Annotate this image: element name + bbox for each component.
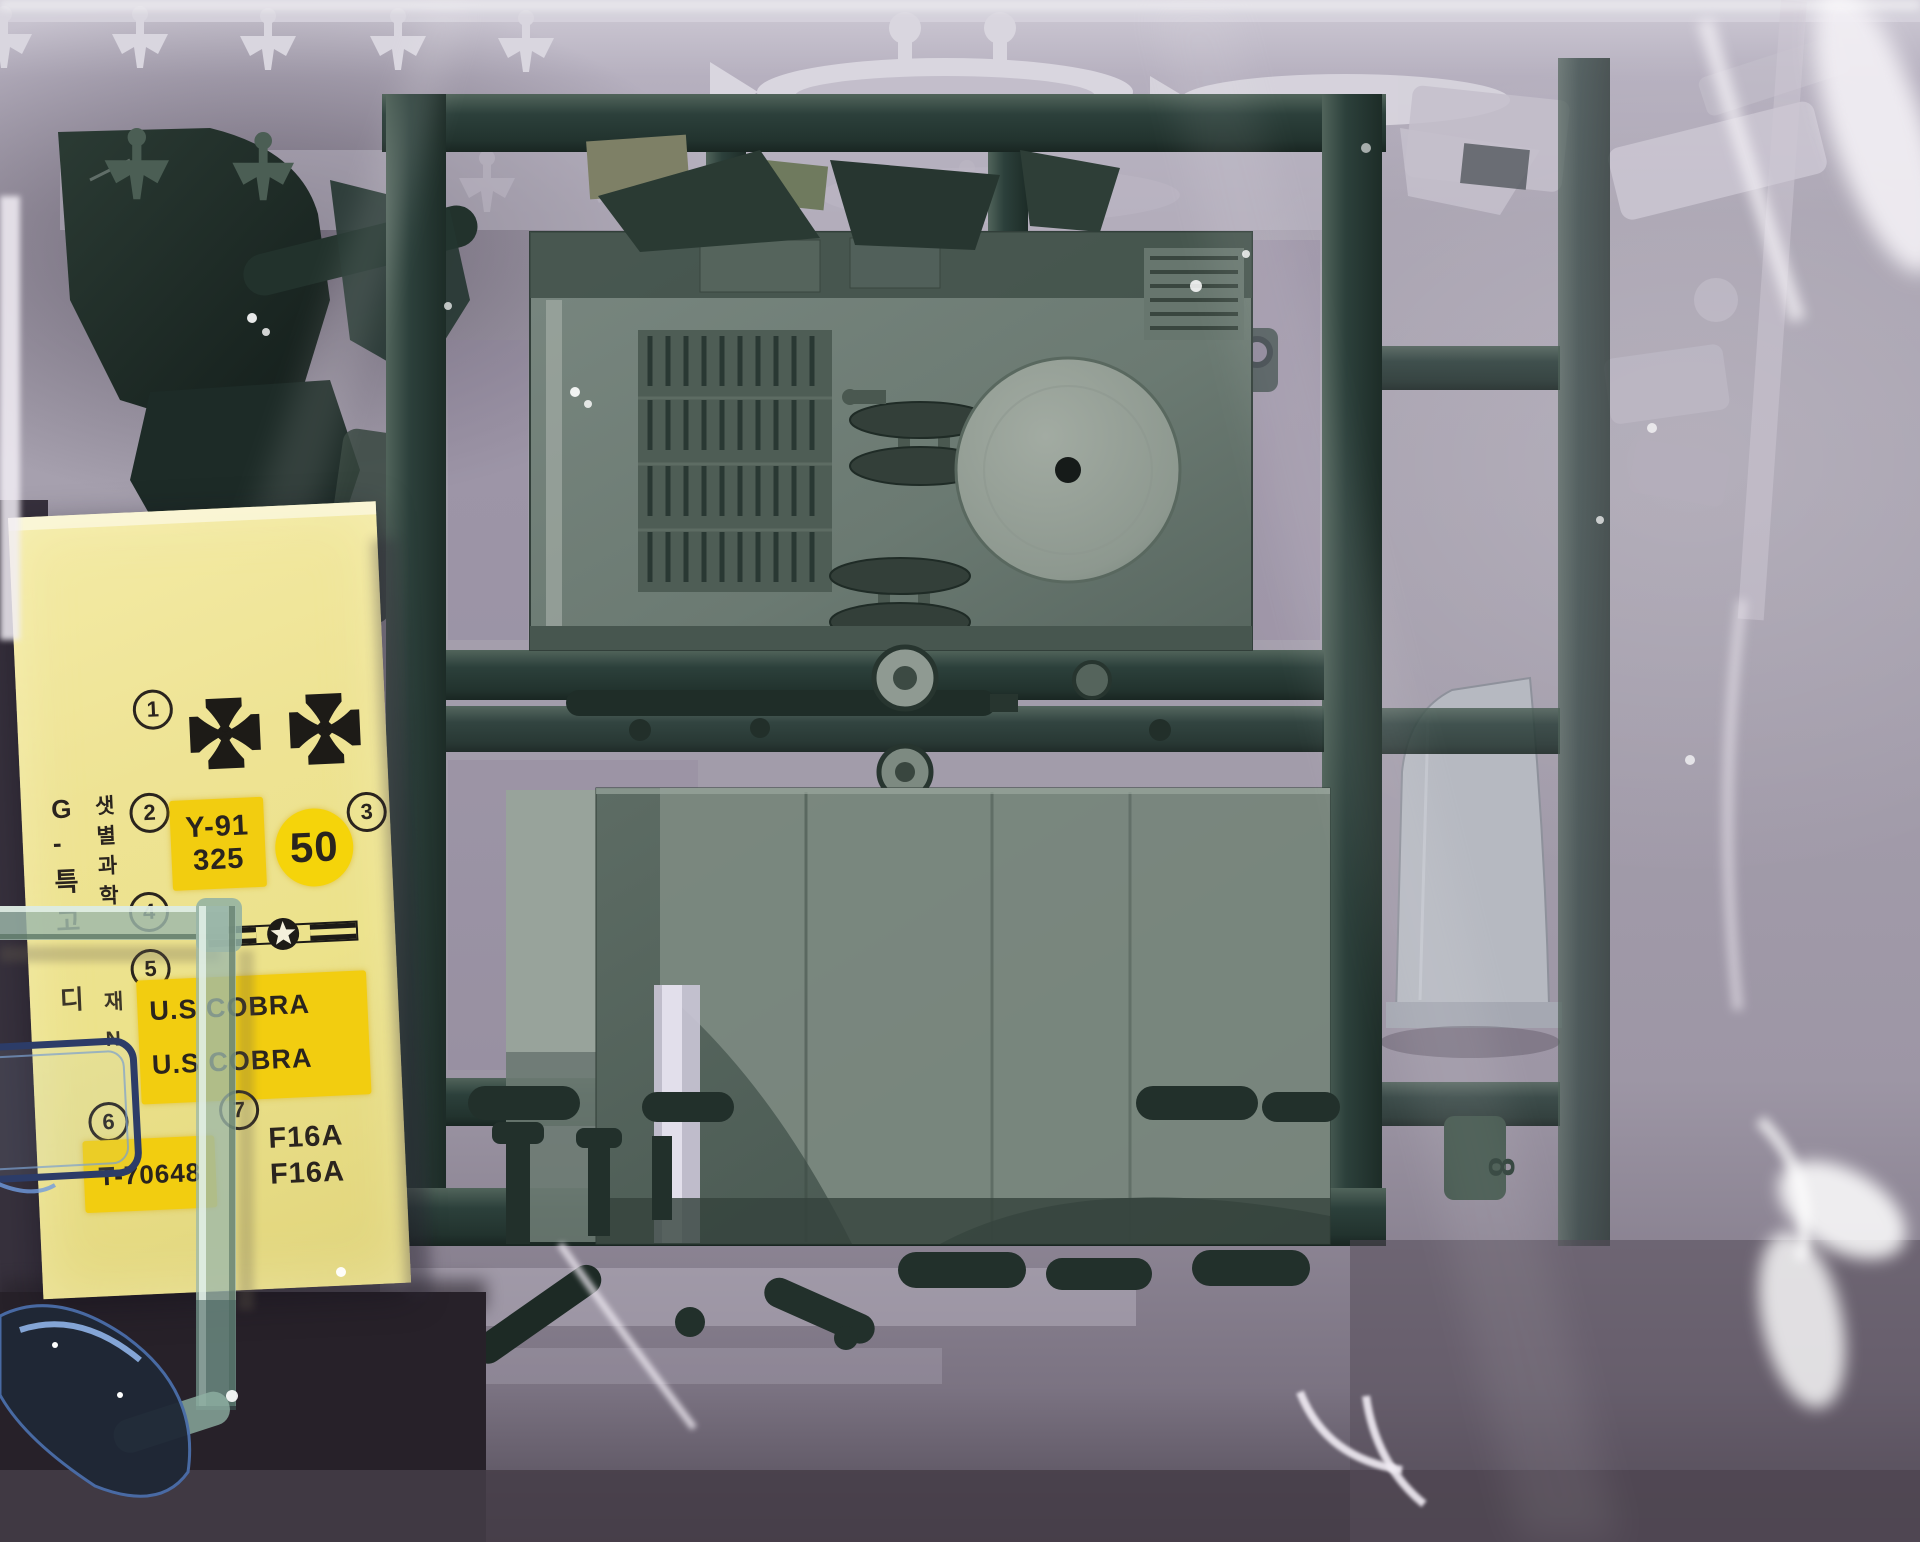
clear-sprue — [0, 898, 254, 1496]
canopy-part — [0, 1306, 190, 1497]
clear-parts-overlay — [0, 0, 1920, 1542]
canopy-frame-part — [0, 1040, 139, 1181]
model-kit-photo: 8 — [0, 0, 1920, 1542]
wrap-crease-highlight — [0, 196, 20, 640]
